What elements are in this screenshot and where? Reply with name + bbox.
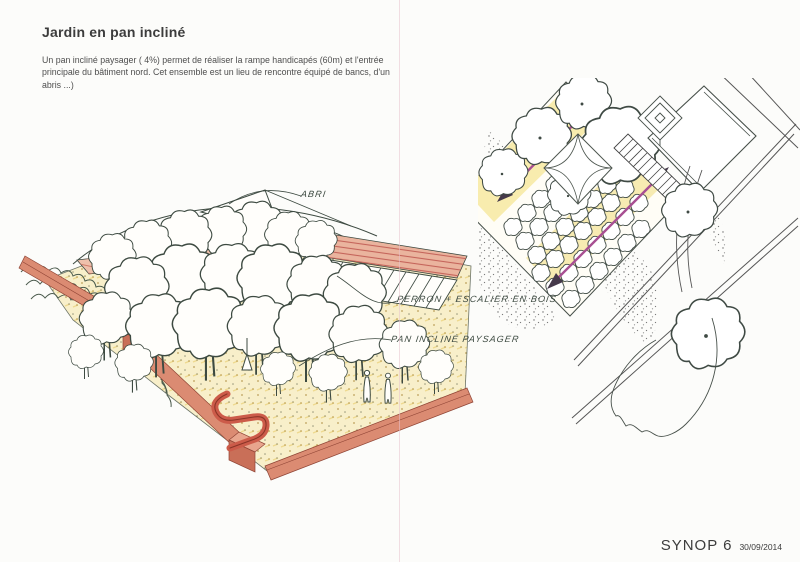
project-name: SYNOP 6 [661, 537, 733, 554]
footer: SYNOP 6 30/09/2014 [661, 537, 782, 554]
date-stamp: 30/09/2014 [739, 542, 782, 552]
annotation-slope: PAN INCLINÉ PAYSAGER [390, 334, 520, 344]
annotation-stairs: PERRON + ESCALIER EN BOIS [396, 294, 557, 304]
description-paragraph: Un pan incliné paysager ( 4%) permet de … [42, 54, 402, 91]
annotation-abri: ABRI [300, 189, 327, 199]
axonometric-sketch [15, 168, 485, 498]
scanned-document-page: Jardin en pan incliné Un pan incliné pay… [0, 0, 800, 562]
page-title: Jardin en pan incliné [42, 24, 185, 40]
plan-view-sketch [478, 78, 800, 478]
scan-fold-line [399, 0, 400, 562]
